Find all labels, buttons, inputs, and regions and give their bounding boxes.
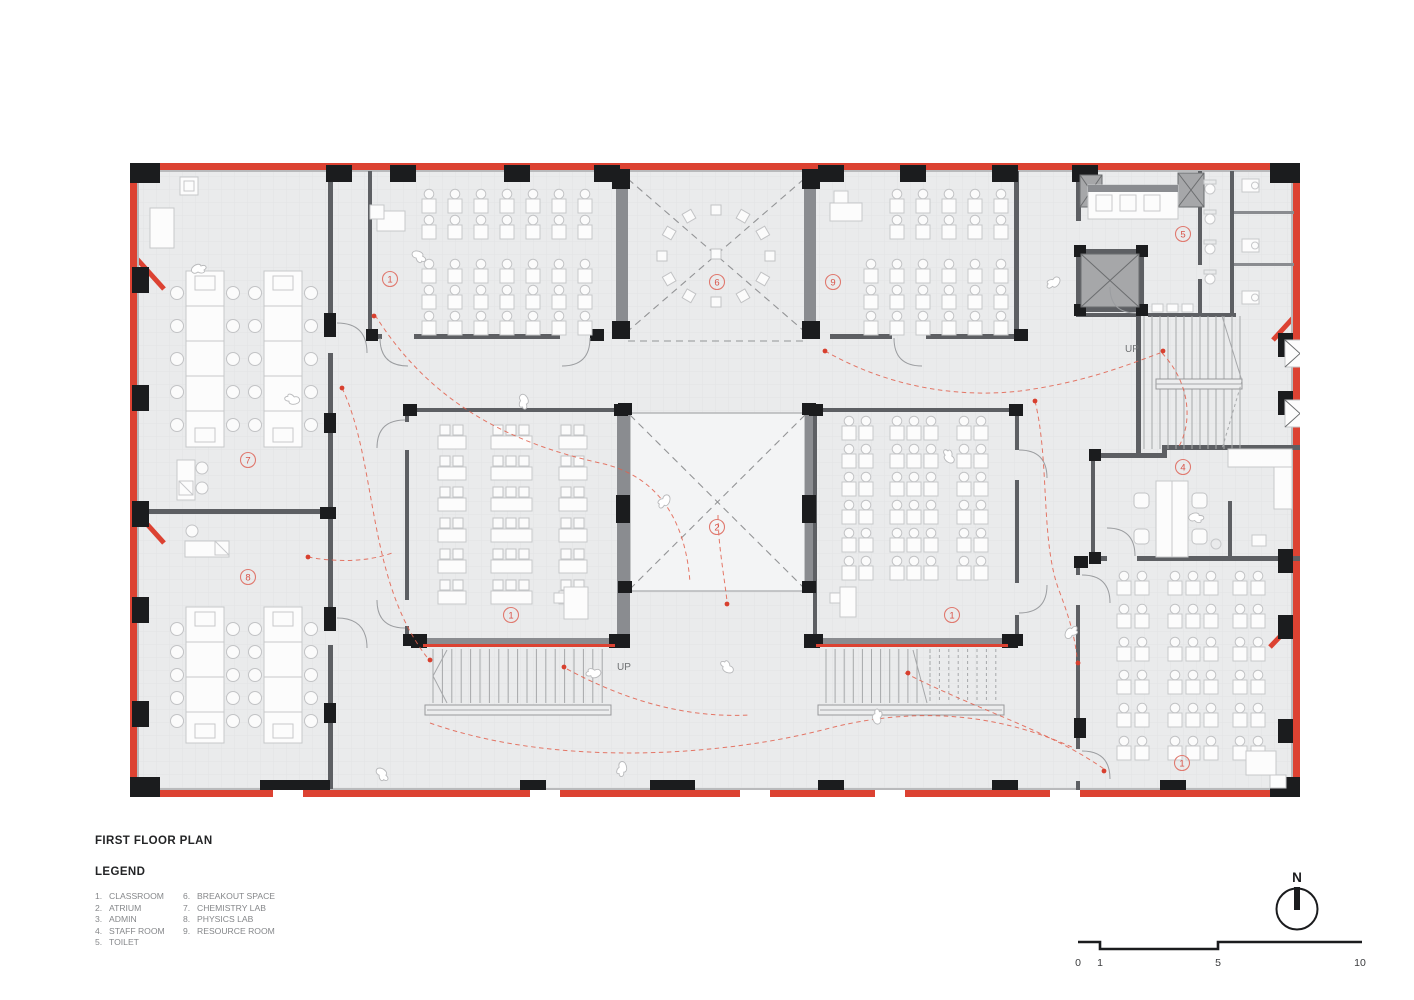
- stair-up-label-left: UP: [617, 662, 631, 673]
- svg-text:6: 6: [714, 277, 719, 288]
- svg-text:9: 9: [830, 277, 835, 288]
- legend-column-1: 1.CLASSROOM 2.ATRIUM 3.ADMIN 4.STAFF ROO…: [95, 891, 165, 949]
- svg-text:2: 2: [714, 522, 719, 533]
- legend-item: 1.CLASSROOM: [95, 891, 165, 903]
- legend-column-2: 6.BREAKOUT SPACE 7.CHEMISTRY LAB 8.PHYSI…: [183, 891, 275, 937]
- legend-item: 5.TOILET: [95, 937, 165, 949]
- svg-text:1: 1: [508, 610, 513, 621]
- svg-text:10: 10: [1354, 957, 1366, 969]
- legend-item: 2.ATRIUM: [95, 903, 165, 915]
- svg-text:7: 7: [245, 455, 250, 466]
- svg-text:1: 1: [387, 274, 392, 285]
- svg-text:1: 1: [1179, 758, 1184, 769]
- north-arrow: N: [1263, 868, 1333, 943]
- svg-text:5: 5: [1180, 229, 1185, 240]
- floor-plan-sheet: 7 8 1 6 9 5 1 2 1 4 1 UP UP FIRST FLOOR …: [0, 0, 1414, 1000]
- svg-text:1: 1: [949, 610, 954, 621]
- legend-item: 8.PHYSICS LAB: [183, 914, 275, 926]
- floor-plan-svg: 7 8 1 6 9 5 1 2 1 4 1 UP UP: [130, 163, 1300, 797]
- plan-graphics: [130, 163, 1300, 797]
- north-needle-icon: [1294, 887, 1300, 910]
- legend-item: 4.STAFF ROOM: [95, 926, 165, 938]
- north-label: N: [1292, 870, 1302, 885]
- legend-item: 7.CHEMISTRY LAB: [183, 903, 275, 915]
- svg-text:1: 1: [1097, 957, 1103, 969]
- svg-text:8: 8: [245, 572, 250, 583]
- svg-text:4: 4: [1180, 462, 1185, 473]
- svg-text:0: 0: [1075, 957, 1081, 969]
- page-title: FIRST FLOOR PLAN: [95, 835, 213, 847]
- legend-item: 9.RESOURCE ROOM: [183, 926, 275, 938]
- legend-item: 6.BREAKOUT SPACE: [183, 891, 275, 903]
- floor-plan: 7 8 1 6 9 5 1 2 1 4 1 UP UP: [130, 163, 1300, 797]
- legend-heading: LEGEND: [95, 866, 145, 878]
- svg-text:5: 5: [1215, 957, 1221, 969]
- stair-up-label-topright: UP: [1125, 344, 1139, 355]
- legend-item: 3.ADMIN: [95, 914, 165, 926]
